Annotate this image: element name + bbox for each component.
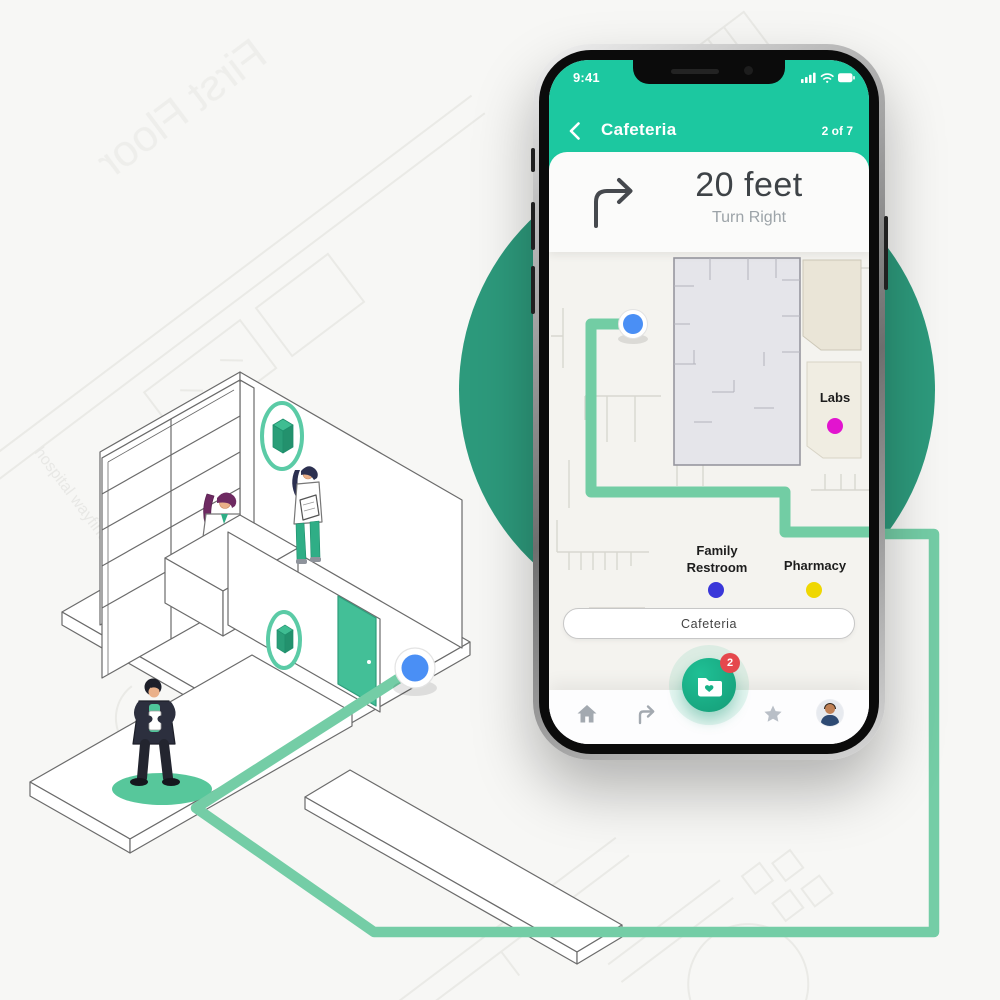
page: First Floor — [0, 0, 1000, 1000]
beacon-icon — [268, 612, 300, 668]
poi-label-restroom: Restroom — [687, 560, 748, 575]
poi-dot-labs — [827, 418, 843, 434]
home-button[interactable] — [575, 702, 599, 726]
back-button[interactable] — [565, 120, 587, 142]
directions-button[interactable] — [635, 702, 659, 726]
turn-right-arrow-icon — [583, 176, 641, 237]
poi-label-labs: Labs — [820, 390, 850, 405]
location-dot-outdoor — [393, 648, 437, 696]
phone-notch — [633, 60, 785, 84]
volume-down-button — [531, 266, 535, 314]
battery-icon — [838, 73, 855, 82]
avatar-face — [825, 704, 835, 714]
poi-label-family: Family — [696, 543, 738, 558]
direction-texts: 20 feet Turn Right — [645, 166, 853, 227]
beacon-icon — [262, 403, 302, 469]
favorites-button[interactable] — [761, 702, 785, 726]
phone-mockup: 9:41 — [533, 44, 885, 760]
step-progress: 2 of 7 — [822, 124, 853, 138]
avatar-shirt — [821, 715, 839, 726]
notification-badge: 2 — [720, 653, 740, 673]
map-building — [674, 258, 800, 465]
front-camera — [744, 66, 753, 75]
chevron-left-icon — [565, 120, 587, 142]
star-icon — [761, 702, 785, 726]
poi-dot-pharmacy — [806, 582, 822, 598]
bottom-nav-bar: 2 — [549, 690, 869, 744]
instruction-text: Turn Right — [645, 209, 853, 227]
poi-dot-family-restroom — [708, 582, 724, 598]
speaker-slot — [671, 69, 719, 74]
status-icons — [801, 71, 855, 89]
destination-pill[interactable]: Cafeteria — [563, 608, 855, 639]
distance-text: 20 feet — [645, 166, 853, 205]
status-time: 9:41 — [573, 70, 600, 85]
signal-icon — [801, 73, 816, 83]
destination-title: Cafeteria — [601, 120, 676, 140]
saved-places-fab[interactable]: 2 — [682, 658, 736, 712]
header-nav-row: Cafeteria 2 of 7 — [549, 118, 869, 144]
power-button — [884, 216, 888, 290]
home-icon — [575, 702, 599, 726]
poi-label-pharmacy: Pharmacy — [784, 558, 847, 573]
visitor-highlight-ellipse — [112, 773, 212, 805]
direction-card: 20 feet Turn Right — [549, 152, 869, 252]
profile-avatar[interactable] — [817, 700, 843, 726]
mute-switch — [531, 148, 535, 172]
phone-screen: 9:41 — [549, 60, 869, 744]
wifi-icon — [822, 74, 833, 83]
phone-bezel: 9:41 — [539, 50, 879, 754]
volume-up-button — [531, 202, 535, 250]
directions-icon — [635, 702, 659, 726]
current-location-dot — [618, 310, 648, 345]
